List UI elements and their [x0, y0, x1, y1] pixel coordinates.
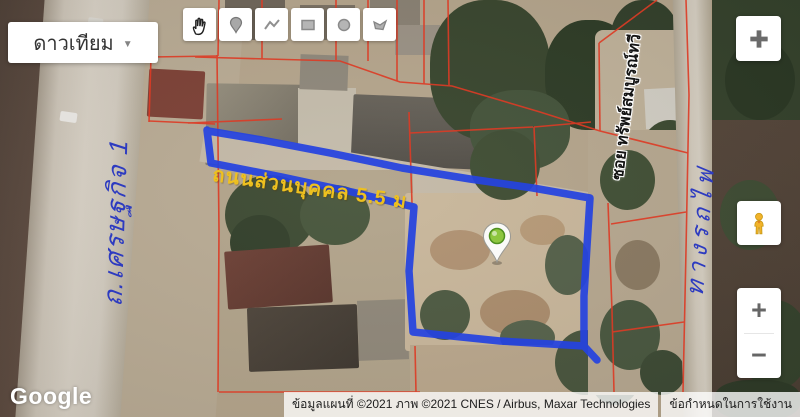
polygon-icon [370, 15, 390, 35]
terms-of-use-link[interactable]: ข้อกำหนดในการใช้งาน [661, 392, 800, 417]
rectangle-icon [298, 15, 318, 35]
draw-polyline-button[interactable] [255, 8, 288, 41]
zoom-control: + − [737, 288, 781, 378]
polyline-icon [262, 15, 282, 35]
fullscreen-button[interactable] [736, 16, 781, 61]
zoom-out-button[interactable]: − [737, 334, 781, 379]
handwritten-road-note-left: ถ.เศรษฐกิจ 1 [93, 135, 140, 308]
fullscreen-exit-icon [746, 26, 772, 52]
draw-rectangle-button[interactable] [291, 8, 324, 41]
circle-icon [334, 15, 354, 35]
google-logo[interactable]: Google [10, 383, 92, 410]
pegman-icon [746, 210, 772, 236]
draw-polygon-button[interactable] [363, 8, 396, 41]
marker-icon [226, 15, 246, 35]
map-data-attribution: ข้อมูลแผนที่ ©2021 ภาพ ©2021 CNES / Airb… [284, 392, 658, 417]
map-type-button[interactable]: ดาวเทียม ▼ [8, 22, 158, 63]
pan-hand-button[interactable] [183, 8, 216, 41]
place-marker-button[interactable] [219, 8, 252, 41]
map-canvas[interactable]: ถนนส่วนบุคคล 5.5 ม ซอย ทรัพย์สมบูรณ์ทวี … [0, 0, 800, 417]
attribution-bar: ข้อมูลแผนที่ ©2021 ภาพ ©2021 CNES / Airb… [284, 392, 800, 417]
zoom-in-button[interactable]: + [737, 288, 781, 333]
drawing-toolbar [183, 8, 396, 41]
map-type-label: ดาวเทียม [33, 27, 113, 59]
street-view-pegman-button[interactable] [737, 201, 781, 245]
draw-circle-button[interactable] [327, 8, 360, 41]
chevron-down-icon: ▼ [123, 39, 133, 50]
hand-icon [189, 14, 211, 36]
